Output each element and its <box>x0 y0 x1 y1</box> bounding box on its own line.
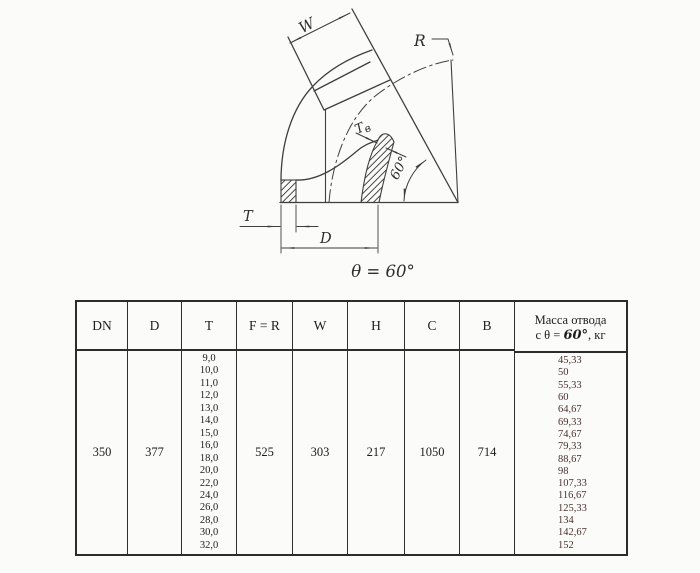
elbow-datasheet-page: W R Тв 60° T D θ = 60° DN 350 D 377 T 9,… <box>0 0 700 573</box>
outer-arc <box>281 50 372 181</box>
bend-start-line <box>324 80 390 110</box>
mass-value: 98 <box>558 466 569 478</box>
column-header-fr: F = R <box>237 302 292 351</box>
t-value: 26,0 <box>200 502 218 514</box>
cell-h: 217 <box>348 351 404 554</box>
angle-label: 60° <box>387 154 412 183</box>
t-value: 9,0 <box>202 353 215 365</box>
column-header-b: B <box>460 302 514 351</box>
t-value: 32,0 <box>200 540 218 552</box>
t-value: 13,0 <box>200 403 218 415</box>
column-header-d: D <box>128 302 181 351</box>
wall-section-hatch-band <box>361 134 394 203</box>
cell-w: 303 <box>293 351 347 554</box>
t-value: 20,0 <box>200 465 218 477</box>
column-header-t: T <box>182 302 236 351</box>
mass-value: 69,33 <box>558 417 582 429</box>
t-value: 24,0 <box>200 490 218 502</box>
w-dimension-label: W <box>296 13 319 37</box>
mass-values-list: 45,335055,336064,6769,3374,6779,3388,679… <box>515 353 626 554</box>
table-column-b: B 714 <box>460 302 515 554</box>
r-radius-line <box>451 60 458 203</box>
mass-value: 50 <box>558 367 569 379</box>
cell-d: 377 <box>128 351 181 554</box>
table-column-fr: F = R 525 <box>237 302 293 554</box>
table-column-mass: Масса отвода с θ = 60°, кг 45,335055,336… <box>515 302 626 554</box>
cell-c: 1050 <box>405 351 459 554</box>
t-values-list: 9,010,011,012,013,014,015,016,018,020,02… <box>182 351 236 554</box>
mass-value: 116,67 <box>558 490 587 502</box>
r-dimension-label: R <box>413 32 426 50</box>
table-column-dn: DN 350 <box>77 302 128 554</box>
theta-caption: θ = 60° <box>351 262 415 281</box>
table-column-w: W 303 <box>293 302 348 554</box>
table-column-c: C 1050 <box>405 302 460 554</box>
d-dimension-label: D <box>319 231 332 247</box>
mass-value: 79,33 <box>558 441 582 453</box>
table-column-t: T 9,010,011,012,013,014,015,016,018,020,… <box>182 302 237 554</box>
t-value: 15,0 <box>200 428 218 440</box>
column-header-c: C <box>405 302 459 351</box>
t-value: 30,0 <box>200 527 218 539</box>
mass-value: 64,67 <box>558 404 582 416</box>
cell-dn: 350 <box>77 351 127 554</box>
cell-fr: 525 <box>237 351 292 554</box>
mass-value: 60 <box>558 392 569 404</box>
t-dimension-label: T <box>243 209 254 225</box>
table-column-d: D 377 <box>128 302 182 554</box>
mass-value: 55,33 <box>558 380 582 392</box>
wall-section-hatch-left <box>281 180 296 203</box>
mass-header-line2: с θ = 60°, кг <box>535 328 605 343</box>
mass-value: 88,67 <box>558 454 582 466</box>
pipe-left-edge <box>288 37 324 110</box>
mass-value: 125,33 <box>558 503 587 515</box>
dimensions-table: DN 350 D 377 T 9,010,011,012,013,014,015… <box>75 300 628 556</box>
tv-dimension-label: Тв <box>353 118 373 139</box>
mass-value: 45,33 <box>558 355 582 367</box>
mass-header-line1: Масса отвода <box>535 313 607 328</box>
mass-value: 134 <box>558 515 574 527</box>
mass-value: 142,67 <box>558 527 587 539</box>
mass-value: 152 <box>558 540 574 552</box>
r-leader-line <box>432 39 453 55</box>
column-header-h: H <box>348 302 404 351</box>
t-value: 22,0 <box>200 478 218 490</box>
cell-b: 714 <box>460 351 514 554</box>
t-value: 11,0 <box>200 378 218 390</box>
table-column-h: H 217 <box>348 302 405 554</box>
mass-value: 107,33 <box>558 478 587 490</box>
t-value: 16,0 <box>200 440 218 452</box>
t-value: 18,0 <box>200 453 218 465</box>
column-header-w: W <box>293 302 347 351</box>
t-value: 28,0 <box>200 515 218 527</box>
mass-value: 74,67 <box>558 429 582 441</box>
t-value: 10,0 <box>200 365 218 377</box>
column-header-dn: DN <box>77 302 127 351</box>
t-value: 14,0 <box>200 415 218 427</box>
column-header-mass: Масса отвода с θ = 60°, кг <box>515 302 626 353</box>
elbow-drawing: W R Тв 60° T D θ = 60° <box>0 0 700 296</box>
t-value: 12,0 <box>200 390 218 402</box>
